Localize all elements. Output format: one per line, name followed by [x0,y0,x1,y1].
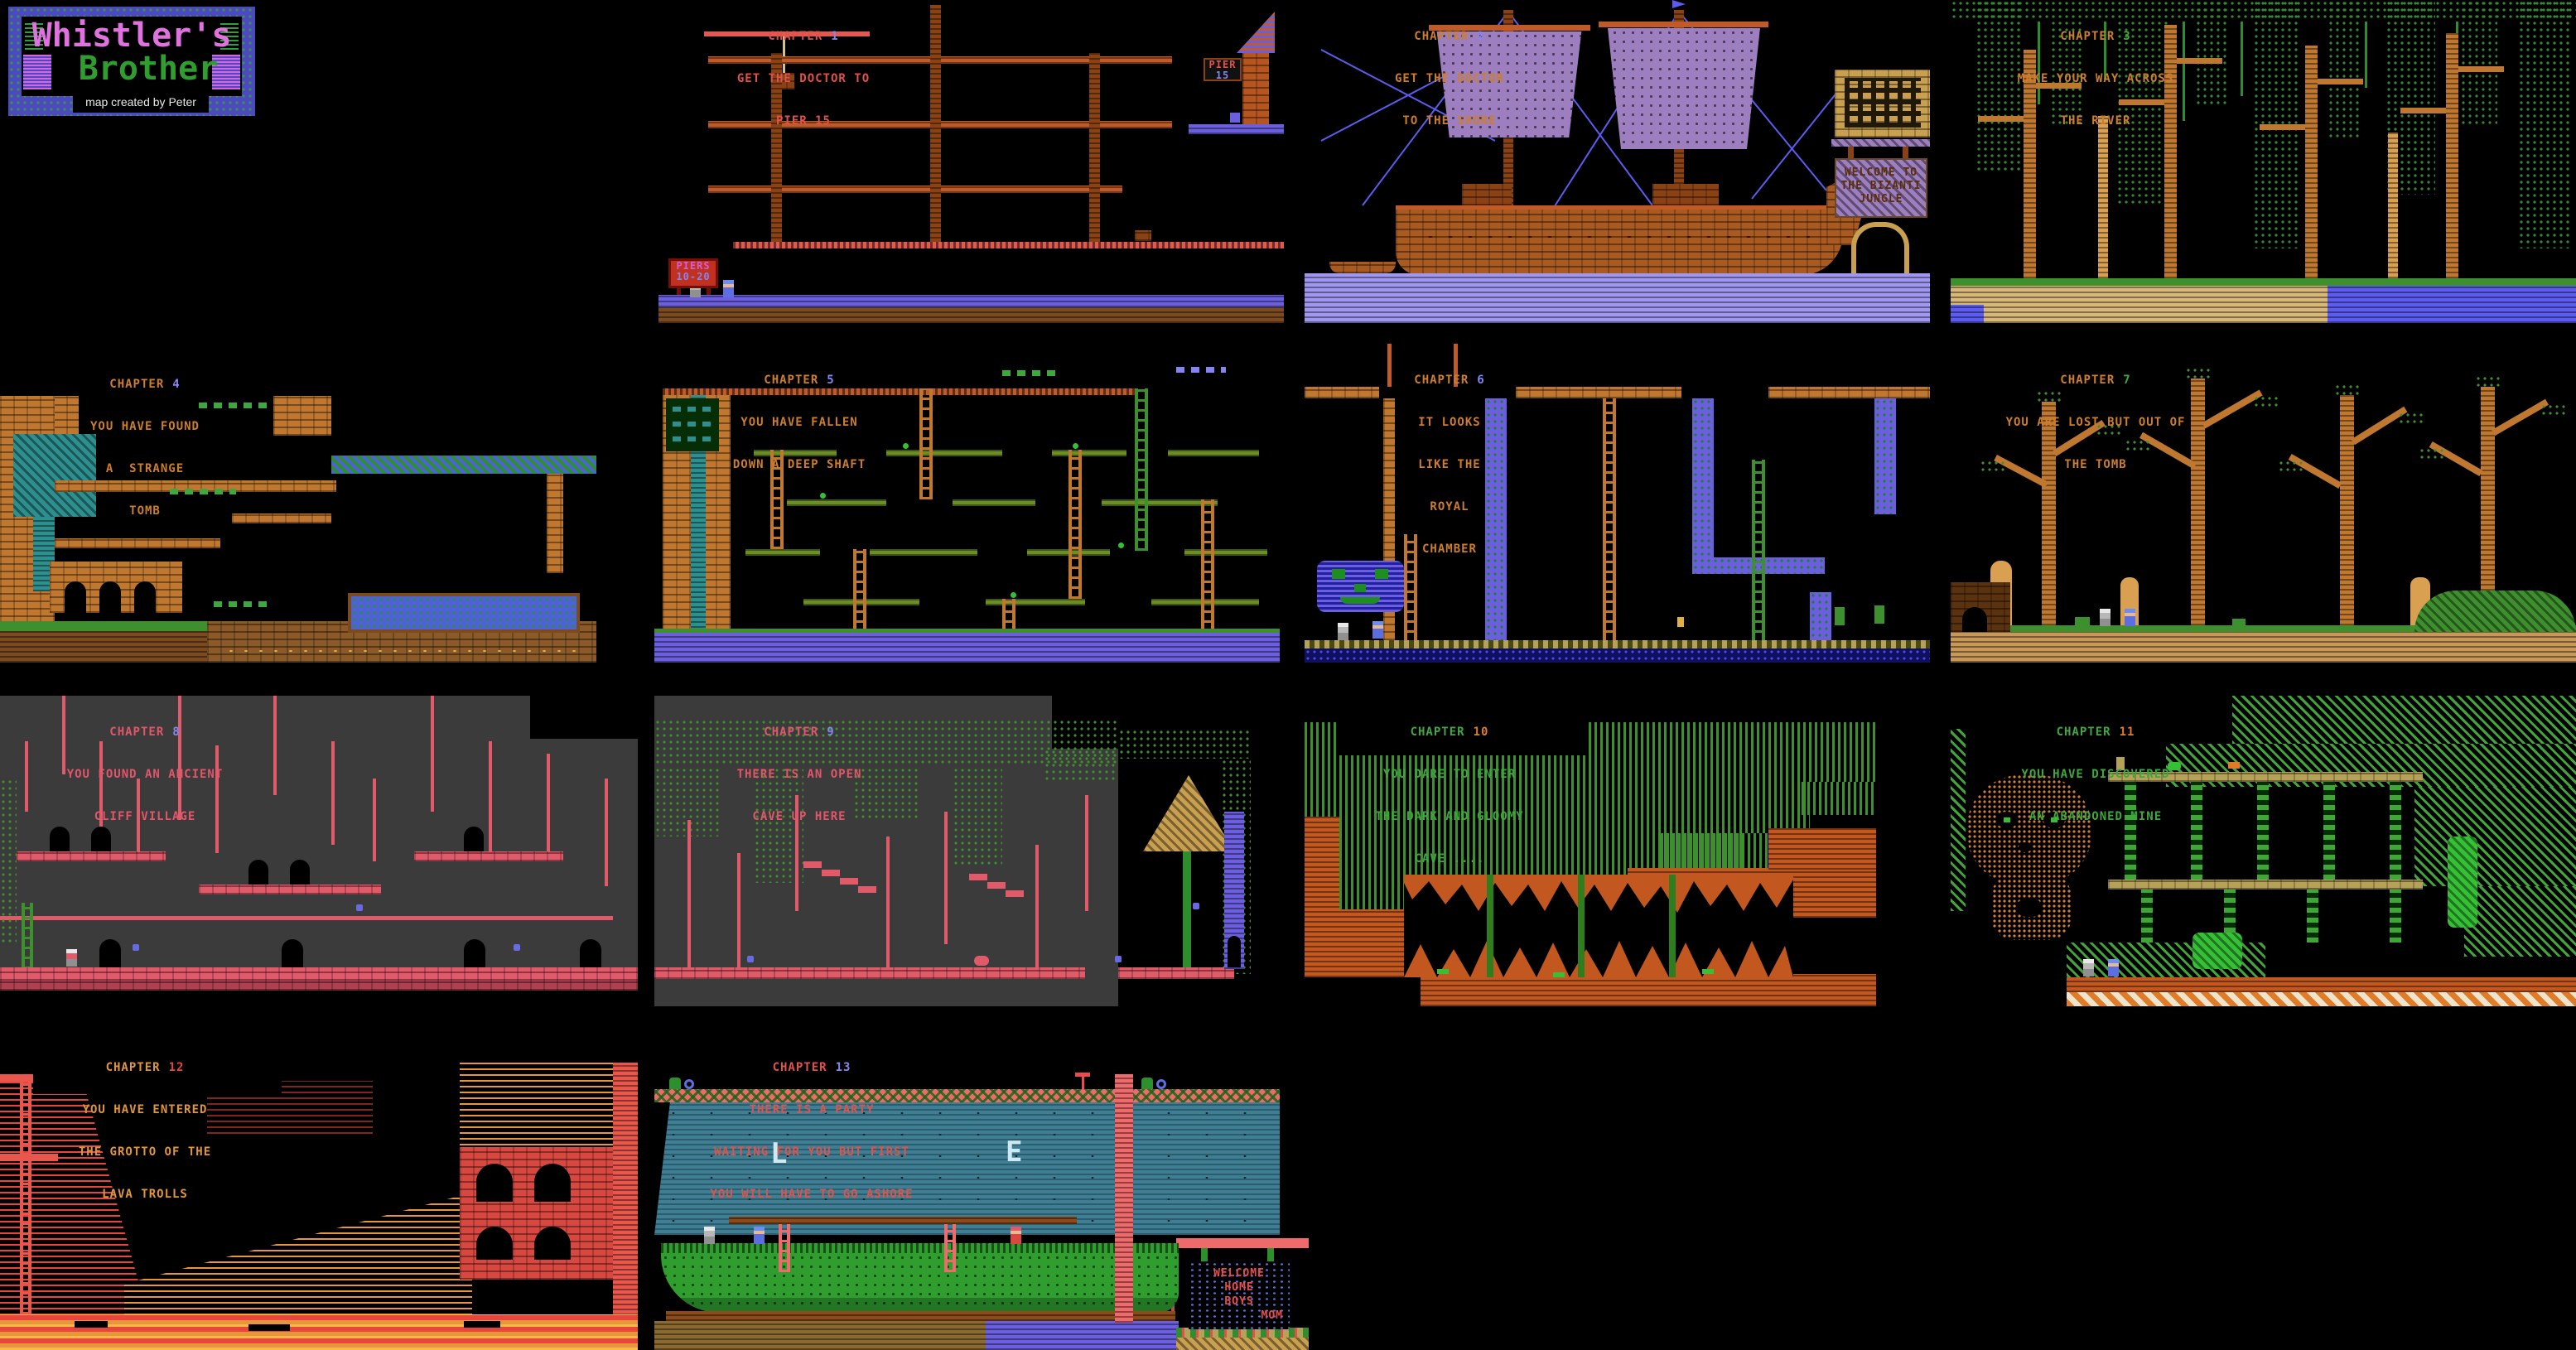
platform [708,186,1122,193]
welcome-home-sign-line: HOME [1189,1280,1290,1295]
grass-strip [1951,278,2576,286]
chapter-3-header: CHAPTER3 MAKE YOUR WAY ACROSS THE RIVER [1959,2,2232,157]
chapter-6-number: 6 [1477,374,1484,387]
mine-post [2390,782,2401,880]
chapter-10-subtitle-line: CAVE .... [1313,852,1586,866]
glyph-row [1176,367,1226,373]
chapter-1-subtitle-line: PIER 15 [667,114,940,128]
king-figure [1874,605,1884,624]
tower-roof [1237,12,1275,53]
grotto-arch [476,1227,513,1260]
chapter-10-map: CHAPTER10 YOU DARE TO ENTER THE DARK AND… [1305,696,1876,1006]
rope [886,837,890,969]
branch [2318,79,2363,84]
mine-post [2390,890,2401,943]
ladder [1752,460,1765,663]
rope [737,853,740,969]
chapter-13-subtitle-line: WAITING FOR YOU BUT FIRST [663,1145,961,1160]
moss-column [1044,749,1118,782]
sign-post [1201,1248,1208,1261]
tree-trunk [2340,395,2354,625]
cliff-ledge [414,851,563,861]
chapter-8-number: 8 [172,726,180,739]
chapter-7-title: CHAPTER7 [1959,374,2232,388]
spider [1193,903,1199,909]
dirt-shelf [1768,828,1876,870]
lava-pool [0,1314,638,1350]
crate [1230,113,1240,123]
goblet [1677,617,1684,627]
water-canal [331,456,596,474]
mine-post [2141,890,2153,943]
platform [787,499,886,506]
slime-fall [2448,837,2477,928]
chapter-2-title: CHAPTER2 [1313,30,1586,44]
deck-house [1462,184,1512,205]
chapter-12-header: CHAPTER12 YOU HAVE ENTERED THE GROTTO OF… [8,1033,282,1230]
water-letter: E [1006,1135,1022,1169]
chapter-11-header: CHAPTER11 YOU HAVE DISCOVERED AN ABANDON… [1959,697,2232,852]
chapter-13-title: CHAPTER13 [663,1061,961,1075]
mushroom [1011,592,1016,598]
king-figure [1835,607,1845,625]
brick-floor [0,967,638,981]
moss-column [953,767,1002,866]
chapter-9-map: CHAPTER9 THERE IS AN OPEN CAVE UP HERE [654,696,1251,1006]
chapter-2-map: WELCOME TO THE BIZANTI JUNGLE CHAPTER2 G… [1305,0,1930,323]
chapter-13-subtitle-line: YOU WILL HAVE TO GO ASHORE [663,1188,961,1202]
grass-tuft [1702,969,1714,974]
piers-sign: PIERS 10-20 [668,258,718,288]
dock-rows [654,1321,986,1350]
river [2328,286,2576,323]
branch [2400,108,2446,113]
mine-post [2257,782,2269,880]
chapter-7-map: CHAPTER7 YOU ARE LOST BUT OUT OF THE TOM… [1951,344,2576,663]
rope [944,812,948,944]
chapter-12-label: CHAPTER [106,1061,161,1074]
lava-column [613,1063,638,1350]
spider [133,944,139,951]
grotto-arch [534,1164,571,1202]
pool-rock [464,1321,500,1328]
stalagmites [1404,941,1793,977]
chapter-11-number: 11 [2120,726,2135,739]
chapter-2-header: CHAPTER2 GET THE DOCTOR TO THE SHORE [1313,2,1586,157]
chapter-6-map: CHAPTER6 IT LOOKS LIKE THE ROYAL CHAMBER [1305,344,1930,663]
beam [0,916,613,920]
foliage [2334,383,2362,395]
cliff-step [840,878,858,885]
sign-post [1903,147,1908,158]
mine-post [2307,890,2318,943]
cliff-step [1006,890,1024,897]
foliage [2419,447,2447,459]
deck-house [1652,184,1719,205]
grass-strip [0,621,207,631]
foliage [2398,412,2426,423]
ship-deck [661,1243,1179,1253]
player-sprite [2125,609,2135,626]
skull-mouth [2017,899,2042,917]
chapter-7-subtitle-line: THE TOMB [1959,458,2232,472]
rope [605,779,608,886]
vine-mass [2414,787,2576,886]
cliff-step [969,874,987,880]
jungle-sign: WELCOME TO THE BIZANTI JUNGLE [1835,158,1927,218]
pier-tower [1242,53,1269,126]
rope [331,741,335,845]
sign-leg [677,288,681,295]
chapter-10-title: CHAPTER10 [1313,726,1586,740]
chapter-4-subtitle-line: A STRANGE [8,462,282,476]
pool-rock [248,1324,290,1331]
sign-leg [707,288,711,295]
frog [974,956,989,966]
grotto-arch [476,1164,513,1202]
sailor-sprite [1011,1227,1021,1244]
slime-pool [2192,933,2242,969]
chapter-11-map: CHAPTER11 YOU HAVE DISCOVERED AN ABANDON… [1951,696,2576,1006]
brick-floor-lower [0,981,638,991]
building-windows [1845,78,1921,128]
chapter-4-map: CHAPTER4 YOU HAVE FOUND A STRANGE TOMB [0,348,596,663]
chapter-8-label: CHAPTER [109,726,164,739]
doorway-arch [134,581,156,613]
sign-post [1267,1248,1274,1261]
vine [2365,22,2367,88]
lava-ceiling [460,1063,638,1145]
hill [2414,591,2576,632]
chapter-10-number: 10 [1474,726,1489,739]
chapter-10-subtitle-line: THE DARK AND GLOOMY [1313,810,1586,824]
logo-title-line1: Whistler's [22,17,242,53]
chapter-7-header: CHAPTER7 YOU ARE LOST BUT OUT OF THE TOM… [1959,345,2232,500]
main-deck [733,242,1284,248]
sign-plank [1831,139,1930,147]
foliage [2278,460,2306,471]
mast [1089,53,1100,243]
mushroom [1118,542,1124,548]
spider [514,944,520,951]
jungle-sign-line: WELCOME TO [1836,166,1926,180]
upper-platform [1189,124,1284,134]
brick-floor [654,967,1085,979]
pool-rock [75,1321,108,1328]
cave-floor [1421,974,1876,1006]
chapter-8-header: CHAPTER8 YOU FOUND AN ANCIENT CLIFF VILL… [8,697,282,852]
sign-beam [1176,1238,1309,1248]
water-strip [986,1321,1179,1350]
rope [489,741,492,853]
chapter-10-subtitle-line: YOU DARE TO ENTER [1313,768,1586,782]
jungle-sign-line: THE BIZANTI [1836,180,1926,193]
map-edge [530,696,638,739]
foliage-column [2460,0,2497,124]
rope [1085,795,1088,911]
mine-floor [2067,977,2576,992]
water-walkway [658,295,1284,307]
chapter-7-number: 7 [2123,374,2130,387]
jungle-mass [1802,782,1876,815]
ladder [22,903,33,969]
doctor-sprite [1338,623,1348,640]
chapter-5-subtitle-line: DOWN A DEEP SHAFT [663,458,936,472]
chapter-2-label: CHAPTER [1414,30,1469,43]
glyph-row [214,601,272,607]
chapter-3-label: CHAPTER [2060,30,2115,43]
ladder [944,1224,956,1272]
sail [1601,28,1767,149]
chapter-2-number: 2 [1477,30,1484,43]
chapter-11-subtitle-line: YOU HAVE DISCOVERED [1959,768,2232,782]
chapter-8-title: CHAPTER8 [8,726,282,740]
welcome-home-sign: WELCOME HOME BOYS MOM [1189,1261,1290,1329]
waterfall [1692,398,1714,572]
chapter-6-subtitle-line: IT LOOKS [1313,416,1586,430]
welcome-home-sign-line: WELCOME [1189,1266,1290,1280]
foliage [2540,403,2569,415]
branch [2260,124,2305,130]
platform [953,499,1035,506]
chapter-3-subtitle-line: THE RIVER [1959,114,2232,128]
welcome-home-sign-line: MOM [1189,1309,1290,1323]
chapter-10-label: CHAPTER [1411,726,1465,739]
checker-floor [1305,640,1930,648]
ladder [779,1224,790,1272]
chapter-9-title: CHAPTER9 [663,726,936,740]
welcome-home-sign-line: BOYS [1189,1295,1290,1309]
moss-band [1118,729,1251,759]
water-bottom [1305,648,1930,663]
chapter-6-header: CHAPTER6 IT LOOKS LIKE THE ROYAL CHAMBER [1313,345,1586,585]
chapter-7-label: CHAPTER [2060,374,2115,387]
chapter-4-header: CHAPTER4 YOU HAVE FOUND A STRANGE TOMB [8,350,282,547]
chapter-13-map: L E WELCOME HOME BOYS MOM CHAPTER13 THER… [654,1031,1309,1350]
spider [1115,956,1122,962]
chapter-5-title: CHAPTER5 [663,374,936,388]
cave-entrance [1962,607,1987,632]
bollard [1141,1078,1153,1089]
hazard-strip [2067,992,2576,1006]
dock-base [658,307,1284,323]
water [1305,273,1930,323]
river [654,633,1280,663]
cave-arch [1228,936,1241,967]
brick-pillar [547,474,563,573]
chapter-6-subtitle-line: LIKE THE [1313,458,1586,472]
spider [747,956,754,962]
player-sprite [1372,621,1383,639]
umbrella-pole [1082,1074,1084,1089]
portholes [1421,234,1810,240]
chapter-11-subtitle-line: AN ABANDONED MINE [1959,810,2232,824]
piers-sign-line: 10-20 [671,272,716,282]
glyph-row [1002,370,1060,376]
platform [745,549,820,556]
rope [1035,845,1039,969]
hull-rail [1396,205,1843,210]
grass-tuft [1553,972,1565,977]
tree-trunk [2388,133,2398,278]
vine [2241,22,2243,96]
chapter-1-number: 1 [831,30,838,43]
cliff-step [987,882,1006,889]
brick-band [273,396,331,436]
cliff-step [822,870,840,876]
branch [2458,66,2504,72]
chapter-5-subtitle-line: YOU HAVE FALLEN [663,416,936,430]
idol-mouth [1340,597,1380,604]
spider [356,904,363,911]
chapter-4-subtitle-line: YOU HAVE FOUND [8,420,282,434]
doorway-arch [580,939,601,967]
cliff-step [858,886,876,893]
chapter-1-title: CHAPTER1 [667,30,940,44]
chapter-13-label: CHAPTER [773,1061,827,1074]
logo-credit: map created by Peter [73,91,209,113]
foliage-column [2518,0,2573,248]
ladder [1135,388,1148,551]
chapter-5-header: CHAPTER5 YOU HAVE FALLEN DOWN A DEEP SHA… [663,345,936,500]
chapter-1-header: CHAPTER1 GET THE DOCTOR TO PIER 15 [667,2,940,157]
foliage [2475,375,2503,387]
chapter-12-title: CHAPTER12 [8,1061,282,1075]
dock-ground [1176,1338,1309,1350]
dirt [0,631,207,663]
chapter-3-number: 3 [2123,30,2130,43]
platform [1052,450,1126,456]
rope [431,696,434,812]
chapter-1-subtitle-line: GET THE DOCTOR TO [667,72,940,86]
chapter-12-map: CHAPTER12 YOU HAVE ENTERED THE GROTTO OF… [0,1031,638,1350]
sand-bank [1951,286,2340,323]
brick-band [1768,387,1930,398]
idol-nose [1354,584,1366,592]
platform [870,549,977,556]
cliff-step [803,861,822,868]
cave-entrance [1851,222,1909,275]
platform [986,599,1085,605]
chapter-4-number: 4 [172,378,180,391]
tree-trunk [2481,387,2495,625]
doorway-arch [248,860,268,885]
doorway-arch [464,827,484,851]
ship-hull [1396,205,1843,275]
chapter-13-header: CHAPTER13 THERE IS A PARTY WAITING FOR Y… [663,1033,961,1230]
vine-mass [2232,696,2576,744]
chapter-6-label: CHAPTER [1414,374,1469,387]
chapter-6-subtitle-line: ROYAL [1313,500,1586,514]
bush [2232,619,2246,625]
chapter-12-subtitle-line: LAVA TROLLS [8,1188,282,1202]
doorway-arch [99,939,121,967]
chapter-4-label: CHAPTER [109,378,164,391]
tan-tree-trunk [1183,851,1191,969]
platform [1102,499,1218,506]
chapter-11-title: CHAPTER11 [1959,726,2232,740]
grass-tuft [1437,969,1449,974]
ground [1951,632,2576,663]
foliage-column [2328,0,2362,141]
chapter-8-map: CHAPTER8 YOU FOUND AN ANCIENT CLIFF VILL… [0,696,638,1006]
chapter-9-subtitle-line: THERE IS AN OPEN [663,768,936,782]
chapter-12-number: 12 [169,1061,185,1074]
ladder [1069,450,1082,599]
chapter-8-subtitle-line: YOU FOUND AN ANCIENT [8,768,282,782]
pier-15-sign-line: 15 [1205,70,1240,81]
chapter-10-header: CHAPTER10 YOU DARE TO ENTER THE DARK AND… [1313,697,1586,894]
logo-title-line2: Brother [38,50,255,86]
chapter-9-header: CHAPTER9 THERE IS AN OPEN CAVE UP HERE [663,697,936,852]
vine-mass [2464,886,2576,957]
tree-trunk [2305,46,2318,278]
pond [348,593,580,633]
chapter-4-title: CHAPTER4 [8,378,282,392]
chapter-8-subtitle-line: CLIFF VILLAGE [8,810,282,824]
tree-trunk [2446,33,2458,278]
waterfall [1874,398,1896,514]
jungle-sign-line: JUNGLE [1836,193,1926,206]
cave-pillar [1669,875,1676,977]
mine-post [2323,782,2335,880]
chapter-1-label: CHAPTER [768,30,822,43]
grotto-arch [534,1227,571,1260]
chapter-9-label: CHAPTER [764,726,818,739]
chapter-9-subtitle-line: CAVE UP HERE [663,810,936,824]
cliff-ledge [199,885,381,894]
floor-shadow [0,991,638,1006]
chapter-6-title: CHAPTER6 [1313,374,1586,388]
doorway-arch [290,860,310,885]
mooring-ring [1156,1079,1166,1089]
ladder [1603,398,1616,663]
cliff-ledge [17,851,166,861]
rowboat [1329,262,1396,273]
brick-floor [1118,967,1234,979]
platform [1184,549,1267,556]
ship-mast [1115,1074,1133,1323]
yard-arm [1599,22,1768,27]
doctor-sprite [2083,959,2094,976]
logo-panel: Whistler's Brother map created by Peter [8,7,255,116]
chapter-9-number: 9 [827,726,834,739]
chapter-2-subtitle-line: TO THE SHORE [1313,114,1586,128]
chapter-13-number: 13 [836,1061,851,1074]
rope [547,754,550,861]
chapter-12-subtitle-line: YOU HAVE ENTERED [8,1103,282,1117]
platform [1168,450,1259,456]
mushroom [1073,443,1078,449]
chapter-12-subtitle-line: THE GROTTO OF THE [8,1145,282,1160]
chapter-13-subtitle-line: THERE IS A PARTY [663,1103,961,1117]
chapter-3-subtitle-line: MAKE YOUR WAY ACROSS [1959,72,2232,86]
chapter-5-label: CHAPTER [764,374,818,387]
bush [2075,617,2090,625]
doctor-sprite [2100,609,2110,626]
rope [373,779,376,861]
foliage [2253,395,2281,407]
chapter-2-subtitle-line: GET THE DOCTOR [1313,72,1586,86]
chapter-6-subtitle-line: CHAMBER [1313,542,1586,557]
treasure-dots [224,648,580,654]
chapter-3-map: CHAPTER3 MAKE YOUR WAY ACROSS THE RIVER [1951,0,2576,323]
chapter-7-subtitle-line: YOU ARE LOST BUT OUT OF [1959,416,2232,430]
pier-15-sign: PIER 15 [1204,58,1242,81]
chapter-11-label: CHAPTER [2057,726,2111,739]
villager-sprite [66,949,77,967]
player-sprite [2108,959,2119,976]
